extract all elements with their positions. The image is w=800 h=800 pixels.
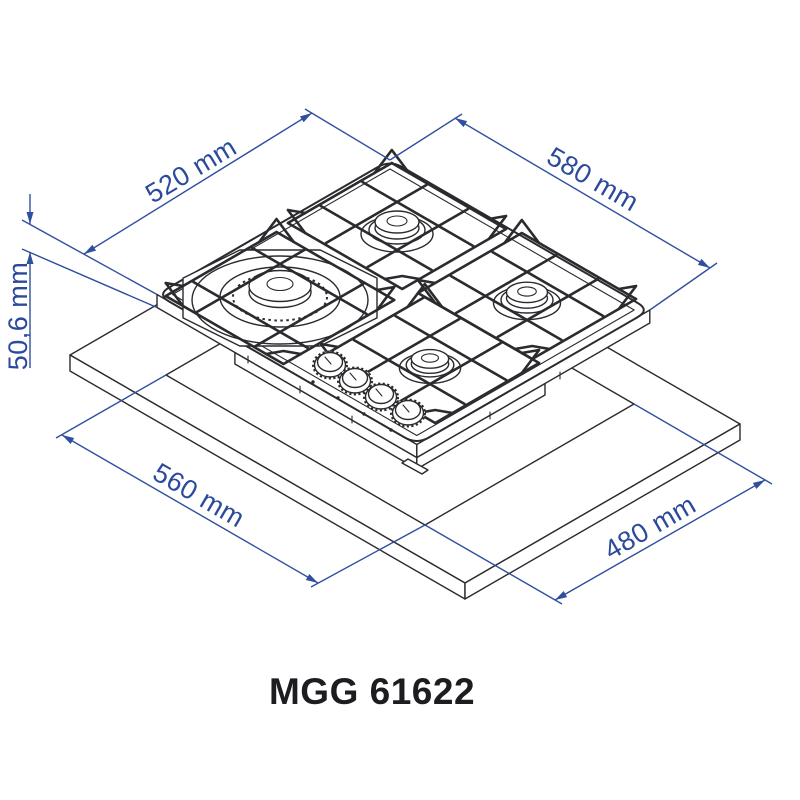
- dimension-560-label: 560 mm: [148, 457, 250, 533]
- dimension-height-label: 50,6 mm: [3, 262, 33, 371]
- burner-back-cap: [375, 211, 419, 233]
- dimension-580-label: 580 mm: [542, 141, 644, 217]
- burner-front-cap: [411, 350, 448, 369]
- dimension-520-label: 520 mm: [140, 132, 242, 210]
- product-model-title: MGG 61622: [269, 671, 475, 712]
- hob-dimension-diagram: 520 mm 580 mm 50,6 mm 560 mm 480 mm MGG …: [0, 0, 800, 800]
- burner-right-cap: [507, 282, 548, 302]
